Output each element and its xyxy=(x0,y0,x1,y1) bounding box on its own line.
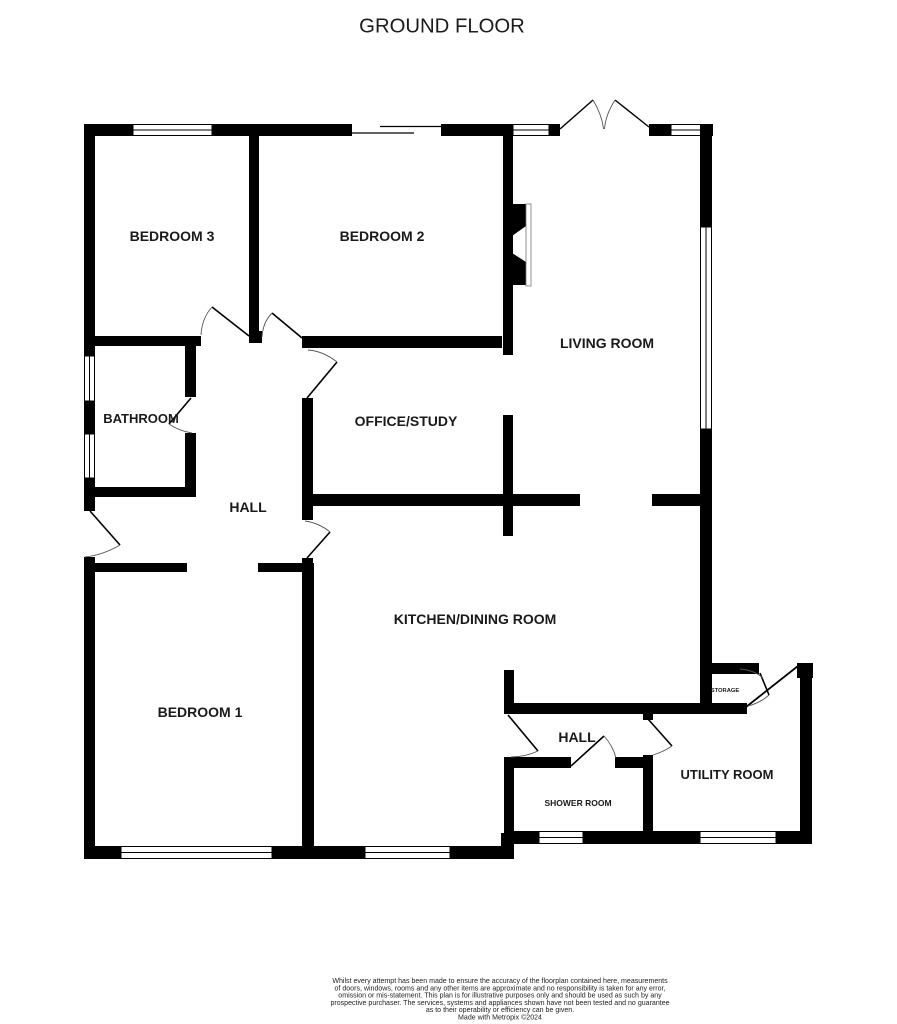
svg-text:Made with Metropix ©2024: Made with Metropix ©2024 xyxy=(458,1014,542,1022)
svg-text:HALL: HALL xyxy=(558,729,596,745)
svg-text:UTILITY ROOM: UTILITY ROOM xyxy=(681,767,774,782)
svg-text:GROUND FLOOR: GROUND FLOOR xyxy=(359,16,525,38)
svg-text:BATHROOM: BATHROOM xyxy=(103,411,179,426)
svg-text:OFFICE/STUDY: OFFICE/STUDY xyxy=(355,413,458,429)
svg-text:KITCHEN/DINING ROOM: KITCHEN/DINING ROOM xyxy=(394,611,557,627)
svg-text:BEDROOM 3: BEDROOM 3 xyxy=(130,228,215,244)
svg-text:omission or mis-statement. Thi: omission or mis-statement. This plan is … xyxy=(338,993,662,1000)
svg-text:BEDROOM 2: BEDROOM 2 xyxy=(340,228,425,244)
svg-text:SHOWER ROOM: SHOWER ROOM xyxy=(544,798,611,808)
svg-text:BEDROOM 1: BEDROOM 1 xyxy=(158,704,243,720)
svg-text:of doors, windows, rooms and a: of doors, windows, rooms and any other i… xyxy=(335,985,666,992)
svg-text:prospective purchaser. The ser: prospective purchaser. The services, sys… xyxy=(330,1000,669,1007)
svg-text:Whilst every attempt has been: Whilst every attempt has been made to en… xyxy=(332,978,668,985)
svg-text:as to their operability or eff: as to their operability or efficiency ca… xyxy=(426,1007,574,1014)
svg-text:LIVING ROOM: LIVING ROOM xyxy=(560,335,654,351)
svg-text:STORAGE: STORAGE xyxy=(711,688,740,694)
svg-text:HALL: HALL xyxy=(229,499,267,515)
